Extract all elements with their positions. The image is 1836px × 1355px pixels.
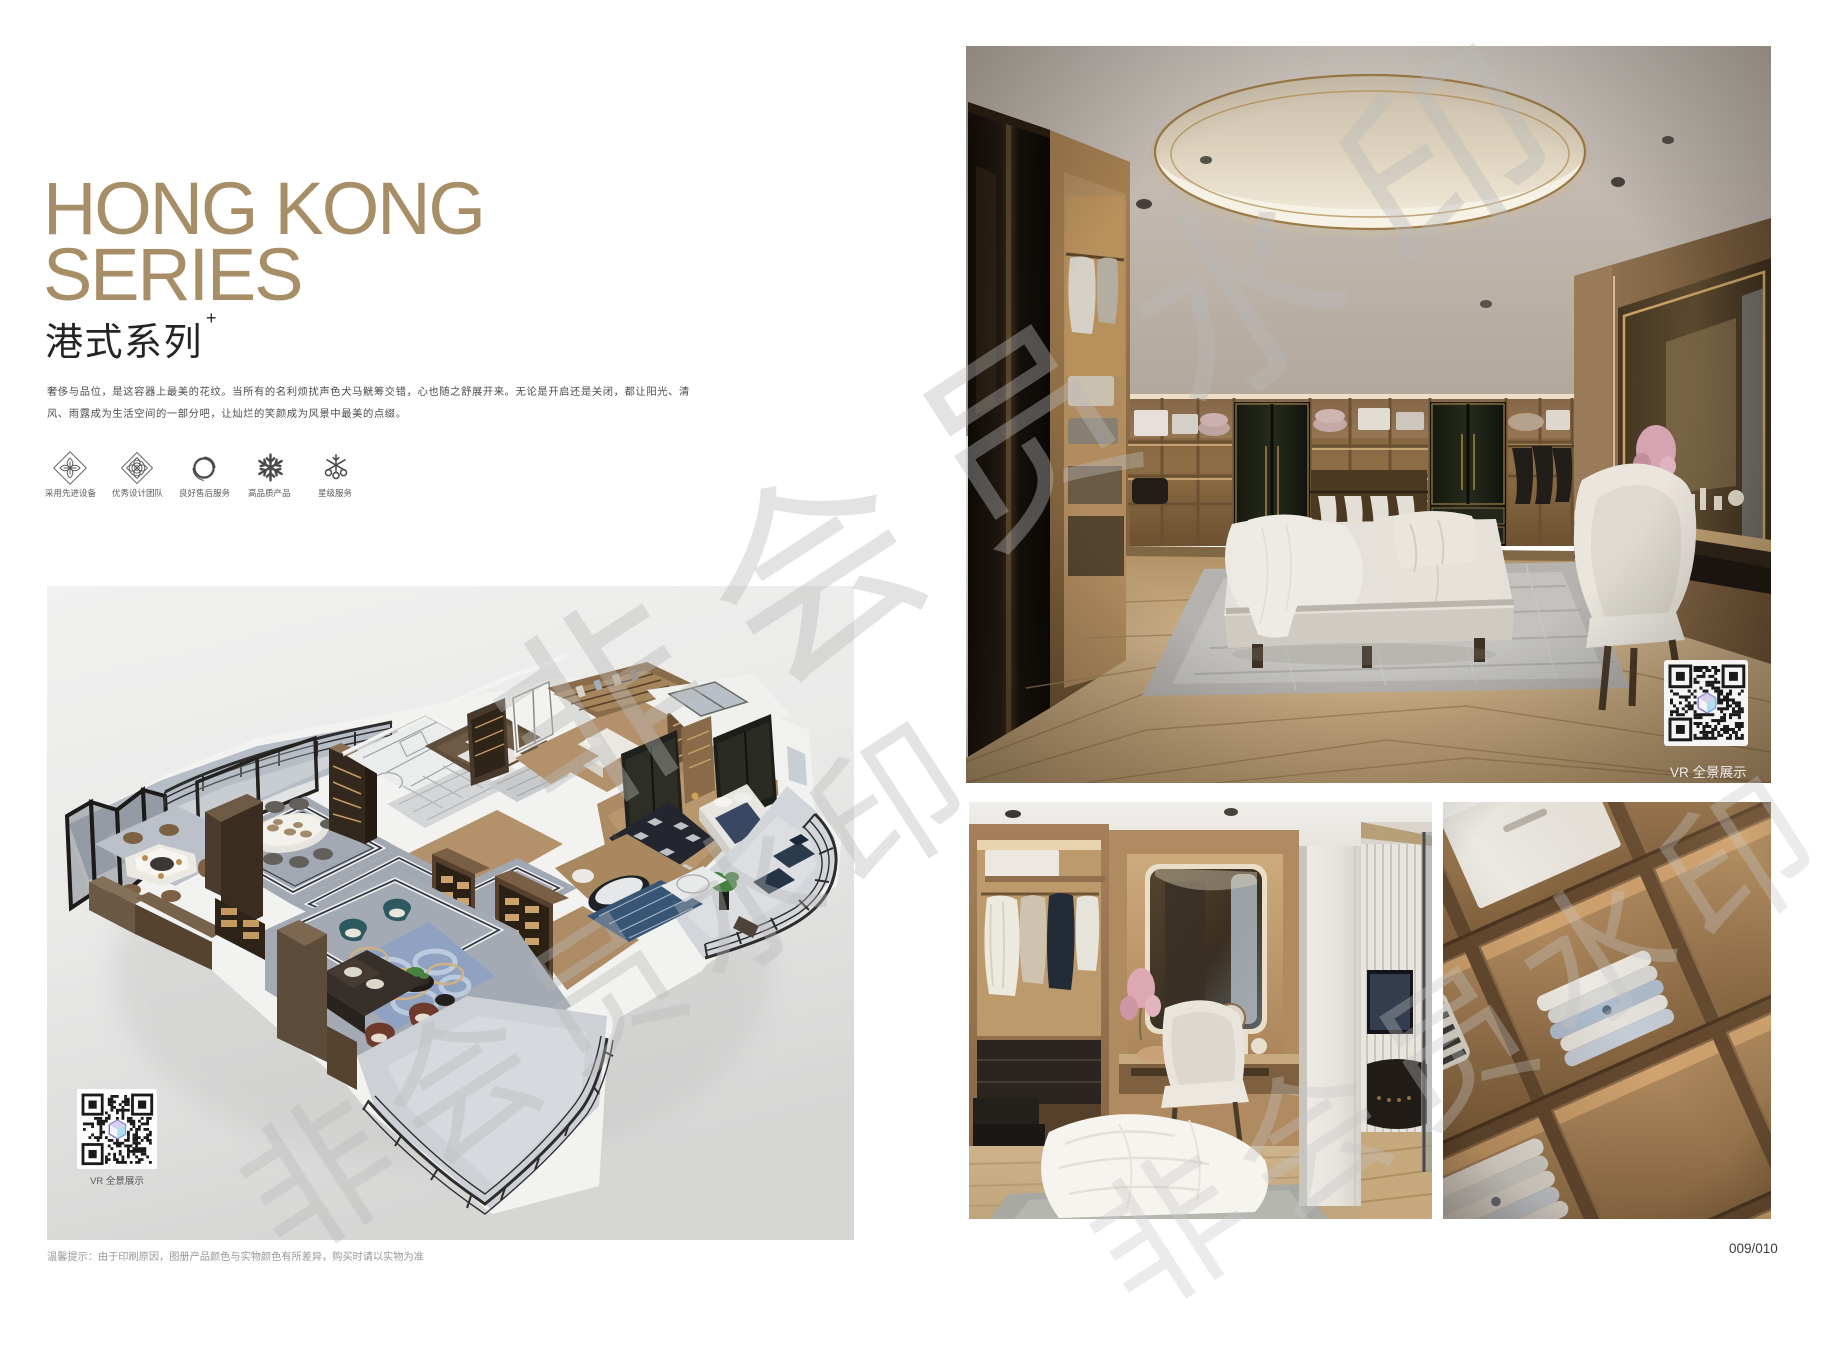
svg-text:VR 全景展示: VR 全景展示: [90, 1175, 144, 1187]
svg-text:VR 全景展示: VR 全景展示: [1670, 764, 1747, 780]
